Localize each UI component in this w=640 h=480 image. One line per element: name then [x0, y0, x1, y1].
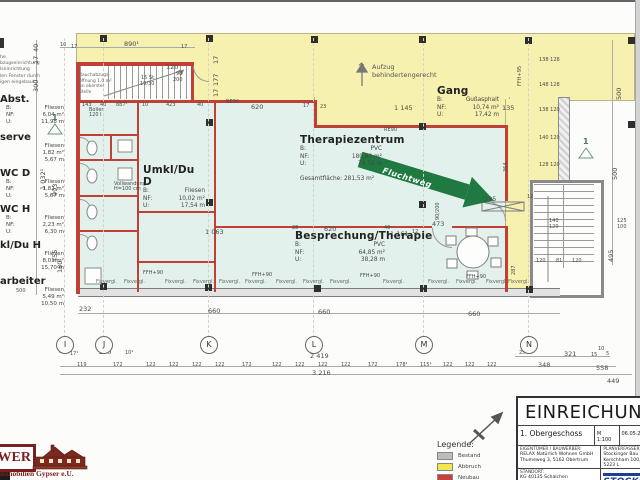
dim-label: 122 — [146, 363, 156, 368]
dim-label: 449 — [607, 378, 619, 385]
room-label-gang: GangB:GußasphaltNF:10,74 m²U:17,42 m — [437, 85, 499, 120]
dim-label: 120 — [549, 225, 559, 230]
grid-bubble-J: J — [95, 336, 113, 354]
owner-lines: RELAX Natürlich Wohnen GmbHThumeweg 3, 5… — [520, 452, 598, 463]
dim-label: 172 — [368, 363, 378, 368]
dim-label: RE90 — [226, 100, 239, 105]
dim-label: 178¹ — [396, 363, 408, 368]
dim-label: Fixvergl. — [124, 280, 145, 285]
dim-label: FFH+90 — [143, 271, 163, 276]
grid-line — [313, 38, 314, 338]
dim-label: 81 — [556, 259, 562, 264]
floor-label: 1. Obergeschoss — [518, 426, 595, 445]
dim-label: 10¹ — [125, 351, 133, 356]
dim-label: 348 — [538, 362, 550, 369]
grid-line — [528, 38, 529, 338]
section-number: 1 — [52, 113, 58, 122]
room-label-therapiezentrum: TherapiezentrumB:PVCNF:180,82 m²U:74,72 … — [300, 134, 382, 182]
legend-title: Legende: — [437, 440, 515, 449]
company-logo-text: WER — [0, 447, 33, 469]
dim-label: 10 — [142, 103, 148, 108]
dim-label: 620 — [251, 104, 263, 111]
room-info-wch: WC HB:FliesenNF:2,23 m²U:6,30 m — [0, 204, 64, 236]
dim-label: 122 — [443, 363, 453, 368]
legend-swatch — [437, 463, 453, 471]
dim-label: 122 — [465, 363, 475, 368]
dim-label: 200 — [173, 78, 183, 83]
dim-label: 321 — [564, 351, 576, 358]
dim-label: Fixvergl. — [303, 280, 324, 285]
dim-label: 660 — [208, 308, 220, 315]
scan-edge-top — [0, 0, 640, 2]
dim-label: 17 — [303, 104, 309, 109]
dim-label: 495 — [608, 250, 615, 262]
dim-label: 10 — [60, 43, 66, 48]
dim-label: 10 — [598, 347, 604, 352]
dim-label: 177 — [213, 74, 220, 86]
dim-label: 122 — [272, 363, 282, 368]
plan-title: EINREICHUNG — [518, 398, 640, 425]
dim-label: Fixvergl. — [456, 280, 477, 285]
dim-label: 17 — [181, 45, 187, 50]
dim-label: Fixvergl. — [383, 280, 404, 285]
dim-label: 128 120 — [539, 163, 560, 168]
dim-label: H=100 cm — [114, 187, 141, 192]
dim-label: 19/30 — [140, 82, 154, 87]
legend-swatch — [437, 474, 453, 480]
dim-label: 135 — [502, 105, 514, 112]
dim-label: 1 145 — [394, 105, 413, 112]
dim-label: 122 — [192, 363, 202, 368]
margin-note: hebzugseinrichtunglseinrichtunglen Fenst… — [0, 55, 58, 86]
grid-bubble-M: M — [415, 336, 433, 354]
dim-label: 122 — [318, 363, 328, 368]
dim-label: 660 — [468, 311, 480, 318]
title-block: EINREICHUNG 1. Obergeschoss M 1:100 06.0… — [516, 396, 640, 480]
room-info-klduh: kl/Du HFliesen8,01 m²15,70 m — [0, 240, 64, 272]
external-staircase-treads — [534, 184, 594, 268]
dim-label: 17 — [71, 45, 77, 50]
dim-label: 500 — [612, 168, 619, 180]
legend: Legende: BestandAbbruchNeubau — [437, 440, 515, 480]
dim-label: 122 — [215, 363, 225, 368]
dim-label: 120 l — [89, 113, 102, 118]
dim-label: 120 — [572, 259, 582, 264]
dim-label: 172 — [113, 363, 123, 368]
dim-label: Fixvergl. — [486, 280, 507, 285]
dim-label: 122 — [169, 363, 179, 368]
elevator-note: Aufzugbehindertengerecht — [372, 63, 437, 80]
house-logo-icon — [31, 443, 89, 471]
grid-bubble-I: I — [56, 336, 74, 354]
dim-label: 23 — [320, 105, 326, 110]
legend-item-bestand: Bestand — [437, 452, 515, 460]
dim-label: FFH+90 — [252, 273, 272, 278]
grid-line — [423, 38, 424, 338]
dim-label: 122 — [295, 363, 305, 368]
legend-swatch — [437, 452, 453, 460]
room-info-wcd: WC DB:FliesenNF:1,82 m²U:5,67 m — [0, 168, 64, 200]
dim-label: 122 — [341, 363, 351, 368]
dim-label: 17 — [213, 89, 220, 97]
dim-label: 287 — [512, 265, 517, 275]
dim-label: 364 — [504, 162, 509, 172]
dim-label: 17¹ — [70, 352, 78, 357]
dim-label: FFH+90 — [360, 274, 380, 279]
dim-label: Fixvergl. — [276, 280, 297, 285]
dim-label: 235 — [484, 196, 496, 203]
grid-line — [208, 38, 209, 338]
dim-label: 17 — [213, 56, 220, 64]
dim-label: 115¹ — [420, 363, 432, 368]
date-label: 06.05.20 — [620, 426, 640, 445]
floor-plan-sheet: 1017890¹171209020015 St19/3014340887¹104… — [0, 0, 640, 480]
dim-label: 148 128 — [539, 83, 560, 88]
up-arrow-icon: ↑ — [356, 61, 367, 76]
room-info-serve: serveFliesen1,82 m²5,67 m — [0, 132, 64, 164]
dim-label: 138 120 — [539, 108, 560, 113]
dim-label: Fixvergl. — [508, 280, 529, 285]
room-label-umkl-du-d: Umkl/Du DB:FliesenNF:10,02 m²U:17,54 m — [143, 164, 205, 211]
dim-label: 423 — [166, 103, 176, 108]
dim-label: 5 — [606, 352, 609, 357]
dim-label: 473 — [432, 221, 444, 228]
room-info-arbeiter: arbeiterFliesen5,49 m²10,50 m — [0, 276, 64, 308]
dim-label: 40 — [197, 103, 203, 108]
dim-label: Fixvergl. — [193, 280, 214, 285]
dim-label: Fixvergl. — [96, 280, 117, 285]
dim-label: 12 — [527, 195, 533, 200]
staircase-divider — [563, 184, 564, 268]
dim-label: 40 — [33, 44, 40, 52]
dim-label: 119 — [77, 363, 87, 368]
stockinger-logo: STOCKINGER — [603, 473, 640, 480]
dim-label: 120 — [536, 259, 546, 264]
dim-label: 90/200 — [436, 202, 441, 220]
dim-label: 500 — [616, 88, 623, 100]
legend-item-abbruch: Abbruch — [437, 463, 515, 471]
dim-label: 660 — [318, 309, 330, 316]
planner-lines: Stockinger BauKerschham 100, 5223 L — [603, 452, 640, 468]
dim-label: 100 — [617, 225, 627, 230]
dim-label: 138 128 — [539, 58, 560, 63]
dim-label: 122 — [487, 363, 497, 368]
dim-label: 558 — [596, 365, 608, 372]
north-arrow-icon — [470, 413, 502, 443]
dim-label: 887¹ — [116, 103, 128, 108]
dim-label: Fixvergl. — [245, 280, 266, 285]
dim-label: 140 120 — [539, 136, 560, 141]
dim-label: 3 216 — [312, 370, 331, 377]
dim-label: 232 — [79, 306, 91, 313]
dim-label: FFH+95 — [518, 66, 523, 86]
scale-label: M 1:100 — [595, 426, 620, 445]
company-logo-subtext: mmobilien Gypser e.U. — [0, 469, 74, 478]
dim-label: RE90 — [384, 128, 397, 133]
section-number: 1 — [583, 137, 589, 146]
dim-label: 890¹ — [124, 41, 139, 48]
existing-wall-hatch — [558, 97, 570, 184]
legend-item-neubau: Neubau — [437, 474, 515, 480]
dim-label: Fixvergl. — [428, 280, 449, 285]
site-lines: KG 40135 SchalchenEZ 768, Grst. Nr. 250 — [520, 475, 598, 480]
grid-line — [64, 38, 65, 338]
grid-bubble-K: K — [200, 336, 218, 354]
scan-edge-left — [0, 38, 4, 48]
smoke-vent-note: Rauchabzugs-öffnung 1,0 m²an oberster St… — [79, 73, 113, 96]
dim-label: 1 063 — [205, 229, 224, 236]
grid-bubble-L: L — [305, 336, 323, 354]
dim-label: Fixvergl. — [330, 280, 351, 285]
dim-label: 172 — [242, 363, 252, 368]
dim-label: 15 — [591, 353, 597, 358]
dim-label: Fixvergl. — [165, 280, 186, 285]
dim-label: 120 — [166, 64, 178, 71]
grid-bubble-N: N — [520, 336, 538, 354]
room-label-besprechung-therapie: Besprechung/TherapieB:PVCNF:64,85 m²U:38… — [295, 230, 385, 265]
dim-label: Fixvergl. — [219, 280, 240, 285]
